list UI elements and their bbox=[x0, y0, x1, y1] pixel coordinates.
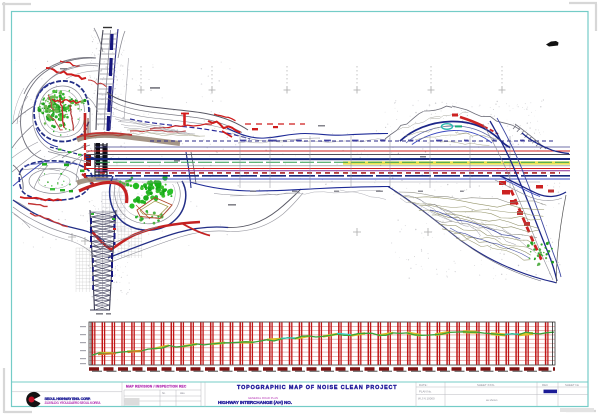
svg-text:No.: No. bbox=[162, 393, 166, 395]
svg-text:SHEET No: SHEET No bbox=[565, 383, 579, 387]
svg-text:PLAN No.: PLAN No. bbox=[419, 390, 432, 394]
svg-text:TOPOGRAPHIC MAP OF NOISE CLEAN: TOPOGRAPHIC MAP OF NOISE CLEAN PROJECT bbox=[237, 385, 397, 391]
svg-text:HIGHWAY INTERCHANGE (AH) NO.: HIGHWAY INTERCHANGE (AH) NO. bbox=[218, 400, 292, 405]
svg-text:SHEET XXXL: SHEET XXXL bbox=[477, 383, 495, 387]
svg-text:data: data bbox=[180, 392, 185, 395]
svg-text:23-5 BLDG. YEOUI-DAERO SEOUL K: 23-5 BLDG. YEOUI-DAERO SEOUL KOREA bbox=[45, 401, 102, 405]
svg-text:as shown: as shown bbox=[486, 398, 498, 402]
svg-text:DATE :: DATE : bbox=[419, 383, 428, 387]
svg-text:MAP REVISION / INSPECTION REC: MAP REVISION / INSPECTION REC bbox=[126, 385, 187, 389]
svg-text:REC: REC bbox=[542, 383, 548, 387]
svg-text:W.J N 10000: W.J N 10000 bbox=[418, 396, 435, 400]
